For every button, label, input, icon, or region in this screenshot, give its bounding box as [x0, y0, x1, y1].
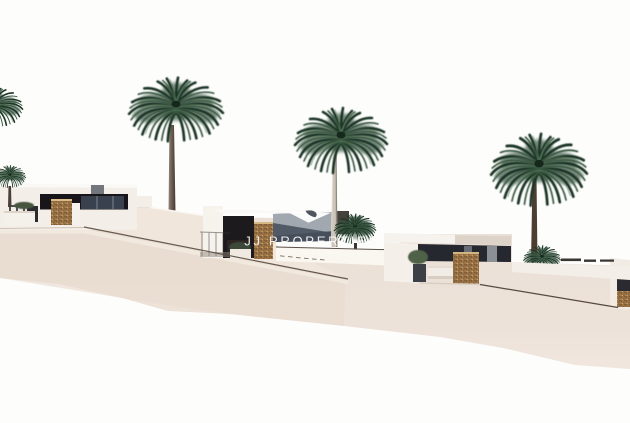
svg-text:REAL ESTATE: REAL ESTATE [288, 251, 341, 257]
svg-text:JJ PROPERTIES: JJ PROPERTIES [244, 234, 379, 249]
